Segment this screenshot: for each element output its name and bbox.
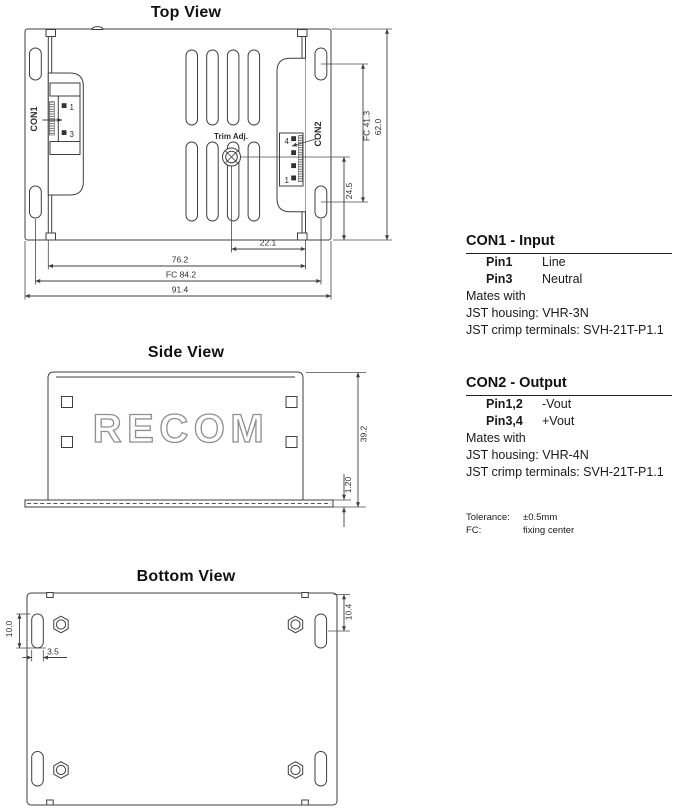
- dim-slot-length: 10.0: [4, 620, 14, 637]
- vent-slot: [186, 50, 198, 125]
- con2-pin: [292, 164, 296, 168]
- fc-note: FC:fixing center: [466, 525, 672, 538]
- edge-notch: [47, 800, 54, 805]
- side-extension-lines: [306, 373, 366, 508]
- side-vent-square: [62, 437, 73, 448]
- case-tab: [298, 233, 308, 240]
- vent-slot: [227, 50, 239, 125]
- footnotes: Tolerance:±0.5mm FC:fixing center: [466, 512, 672, 537]
- case-tab: [298, 30, 308, 37]
- vent-slot: [186, 142, 198, 221]
- mounting-slot: [315, 614, 327, 648]
- pin-signal: Line: [542, 255, 566, 269]
- con2-notes: CON2 - Output Pin1,2-Vout Pin3,4+Vout Ma…: [466, 375, 672, 481]
- con1-latch: [50, 83, 80, 96]
- trim-adj-label: Trim Adj.: [214, 132, 248, 141]
- con2-label: CON2: [313, 121, 323, 146]
- jst-housing-line: JST housing: VHR-4N: [466, 447, 672, 464]
- dim-baseplate-thickness: 1.20: [343, 476, 353, 493]
- edge-notch: [302, 593, 309, 598]
- recom-logo: RECOM: [93, 407, 269, 451]
- vent-slot: [248, 50, 260, 125]
- con2-pin-row: Pin1,2-Vout: [466, 396, 672, 413]
- footnote-value: fixing center: [523, 525, 574, 536]
- con2-pin: [292, 137, 296, 141]
- dim-fixing-center-h: FC 84.2: [166, 270, 197, 280]
- mounting-slot: [32, 614, 44, 648]
- con2-pin1-number: 1: [285, 176, 290, 185]
- dim-slot-width: 3.5: [47, 647, 59, 657]
- con1-latch: [50, 142, 80, 155]
- pin-signal: +Vout: [542, 414, 574, 428]
- con2-heading: CON2 - Output: [466, 375, 672, 396]
- mates-with-line: Mates with: [466, 288, 672, 305]
- pin-signal: Neutral: [542, 272, 582, 286]
- mounting-slot: [32, 752, 44, 787]
- pin-label: Pin1,2: [486, 396, 542, 413]
- dim-overall-width: 91.4: [172, 285, 189, 295]
- con1-pin: [62, 131, 66, 135]
- con2-pin-row: Pin3,4+Vout: [466, 413, 672, 430]
- top-view-drawing: 1 3 CON1 4 1 CON2 Trim Adj.: [25, 27, 392, 300]
- edge-notch: [47, 593, 54, 598]
- footnote-label: Tolerance:: [466, 512, 523, 525]
- mates-with-line: Mates with: [466, 430, 672, 447]
- con1-notes: CON1 - Input Pin1Line Pin3Neutral Mates …: [466, 233, 672, 339]
- footnote-label: FC:: [466, 525, 523, 538]
- case-tab: [46, 233, 56, 240]
- edge-notch: [302, 800, 309, 805]
- dim-trim-to-bottom: 24.5: [344, 182, 354, 199]
- con1-pin3-number: 3: [70, 130, 75, 139]
- dim-trim-to-edge: 22.1: [260, 238, 277, 248]
- con1-pin: [62, 104, 66, 108]
- side-dimensions: 39.2 1.20: [343, 373, 369, 528]
- con2-pin: [292, 151, 296, 155]
- con1-pin-row: Pin3Neutral: [466, 271, 672, 288]
- tolerance-note: Tolerance:±0.5mm: [466, 512, 672, 525]
- con1-contact-strip: [49, 102, 54, 135]
- dim-slot-center-offset: 10.4: [344, 603, 354, 620]
- dim-overall-height: 62.0: [373, 118, 383, 135]
- datasheet-mechanical-drawing: Top View Side View Bottom View: [0, 0, 675, 808]
- connector-notes: CON1 - Input Pin1Line Pin3Neutral Mates …: [466, 233, 672, 537]
- vent-slot: [207, 142, 219, 221]
- side-view-drawing: RECOM 39.2 1.20: [25, 372, 369, 527]
- jst-housing-line: JST housing: VHR-3N: [466, 305, 672, 322]
- side-vent-square: [286, 437, 297, 448]
- pin-label: Pin3,4: [486, 413, 542, 430]
- con1-label: CON1: [29, 106, 39, 131]
- dim-side-height: 39.2: [359, 425, 369, 442]
- con2-contact-strip: [299, 136, 303, 182]
- con2-pin: [292, 176, 296, 180]
- pin-signal: -Vout: [542, 397, 571, 411]
- pin-label: Pin3: [486, 271, 542, 288]
- bottom-view-drawing: 10.0 3.5 10.4: [4, 593, 354, 806]
- case-tab: [46, 30, 56, 37]
- con1-pin1-number: 1: [70, 103, 75, 112]
- dim-fixing-center-v: FC 41.3: [362, 111, 372, 142]
- mounting-slot: [315, 752, 327, 787]
- vent-slot: [207, 50, 219, 125]
- side-vent-square: [62, 397, 73, 408]
- vent-slot: [248, 142, 260, 221]
- jst-crimp-line: JST crimp terminals: SVH-21T-P1.1: [466, 322, 672, 339]
- jst-crimp-line: JST crimp terminals: SVH-21T-P1.1: [466, 464, 672, 481]
- top-edge-bump: [92, 27, 103, 30]
- dim-body-width: 76.2: [172, 255, 189, 265]
- mounting-slot: [30, 186, 42, 218]
- con1-heading: CON1 - Input: [466, 233, 672, 254]
- footnote-value: ±0.5mm: [523, 512, 557, 523]
- side-vent-square: [286, 397, 297, 408]
- con2-pin4-number: 4: [285, 137, 290, 146]
- pin-label: Pin1: [486, 254, 542, 271]
- mounting-slot: [30, 48, 42, 80]
- con1-pin-row: Pin1Line: [466, 254, 672, 271]
